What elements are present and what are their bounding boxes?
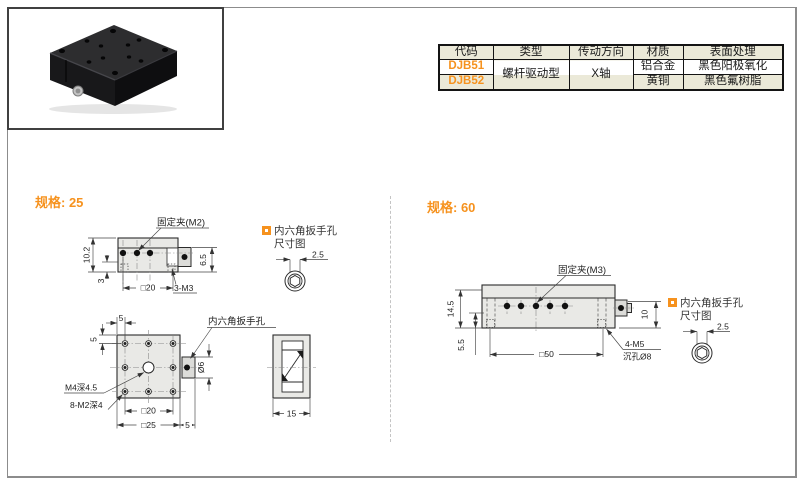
product-spec-table: 代码 类型 传动方向 材质 表面处理 DJB51 螺杆驱动型 X轴 铝合金 黑色… <box>438 44 784 91</box>
dim-pitch-top: 5 <box>119 313 124 323</box>
finish-djb52: 黑色氟树脂 <box>683 75 783 91</box>
finish-djb51: 黑色阳极氧化 <box>683 60 783 75</box>
table-header-row: 代码 类型 传动方向 材质 表面处理 <box>439 45 783 60</box>
spec60-side-view: 固定夹(M3) 14.5 5.5 □50 10 <box>446 264 662 362</box>
direction-cell: X轴 <box>569 60 633 91</box>
hex-detail-subtitle: 尺寸图 <box>274 236 340 248</box>
dim-width: □50 <box>539 349 554 359</box>
catalog-page: 代码 类型 传动方向 材质 表面处理 DJB51 螺杆驱动型 X轴 铝合金 黑色… <box>0 0 802 480</box>
spec60-drawing: 固定夹(M3) 14.5 5.5 □50 10 <box>440 258 690 368</box>
spec25-heading: 规格: 25 <box>35 192 83 211</box>
bullet-square-icon <box>668 298 677 307</box>
dim-height: 14.5 <box>446 300 456 317</box>
product-photo <box>9 9 222 128</box>
dim-outer-square: □25 <box>141 420 156 430</box>
center-thread-label: M4深4.5 <box>65 383 97 393</box>
corner-thread-label: 8-M2深4 <box>70 400 103 410</box>
thread-label-line2: 沉孔Ø8 <box>623 352 652 362</box>
dim-offset: 5.5 <box>456 339 466 351</box>
product-photo-box <box>7 7 224 130</box>
spec25-side-view: 固定夹(M2) 10.2 3 □20 3-M3 <box>82 217 218 294</box>
dim-pitch-left: 5 <box>89 337 99 342</box>
header-finish: 表面处理 <box>683 45 783 60</box>
hex-detail-subtitle: 尺寸图 <box>680 308 747 320</box>
dim-knob-offset: 5 <box>185 420 190 430</box>
type-cell: 螺杆驱动型 <box>493 60 569 91</box>
clamp-label: 固定夹(M2) <box>157 217 205 229</box>
hex-dim: 2.5 <box>717 322 729 332</box>
dim-right-height: 6.5 <box>198 254 208 266</box>
thread-label-line1: 4-M5 <box>625 339 645 349</box>
dim-width: □20 <box>141 283 156 293</box>
material-djb52: 黄铜 <box>633 75 683 91</box>
bullet-square-icon <box>262 226 271 235</box>
header-type: 类型 <box>493 45 569 60</box>
header-material: 材质 <box>633 45 683 60</box>
clamp-label: 固定夹(M3) <box>558 264 606 276</box>
section-divider <box>390 196 391 442</box>
dim-knob-height: 10 <box>640 310 650 320</box>
code-djb52: DJB52 <box>439 75 493 91</box>
spec25-plan-view: 5 5 内六角扳手孔 Ø6 M4深4.5 8-M2深4 <box>64 313 276 430</box>
spec60-heading: 规格: 60 <box>427 197 475 216</box>
dim-depth: 15 <box>287 408 297 418</box>
hex-detail-drawing: 2.5 <box>677 322 747 368</box>
spec60-hex-detail: 内六角扳手孔 尺寸图 2.5 <box>668 296 747 368</box>
hex-dim: 2.5 <box>312 250 324 260</box>
table-row: DJB51 螺杆驱动型 X轴 铝合金 黑色阳极氧化 <box>439 60 783 75</box>
hex-detail-drawing: 2.5 <box>270 250 340 296</box>
material-djb51: 铝合金 <box>633 60 683 75</box>
dim-inner-square: □20 <box>141 406 156 416</box>
dim-height: 10.2 <box>82 246 92 263</box>
thread-label: 3-M3 <box>174 283 194 293</box>
header-direction: 传动方向 <box>569 45 633 60</box>
spec25-profile-view: 15 <box>267 335 316 418</box>
spec25-hex-detail: 内六角扳手孔 尺寸图 2.5 <box>262 224 340 296</box>
code-djb51: DJB51 <box>439 60 493 75</box>
dim-knob-dia: Ø6 <box>196 362 206 374</box>
hex-hole-label: 内六角扳手孔 <box>208 316 266 328</box>
dim-offset: 3 <box>96 278 106 283</box>
header-code: 代码 <box>439 45 493 60</box>
